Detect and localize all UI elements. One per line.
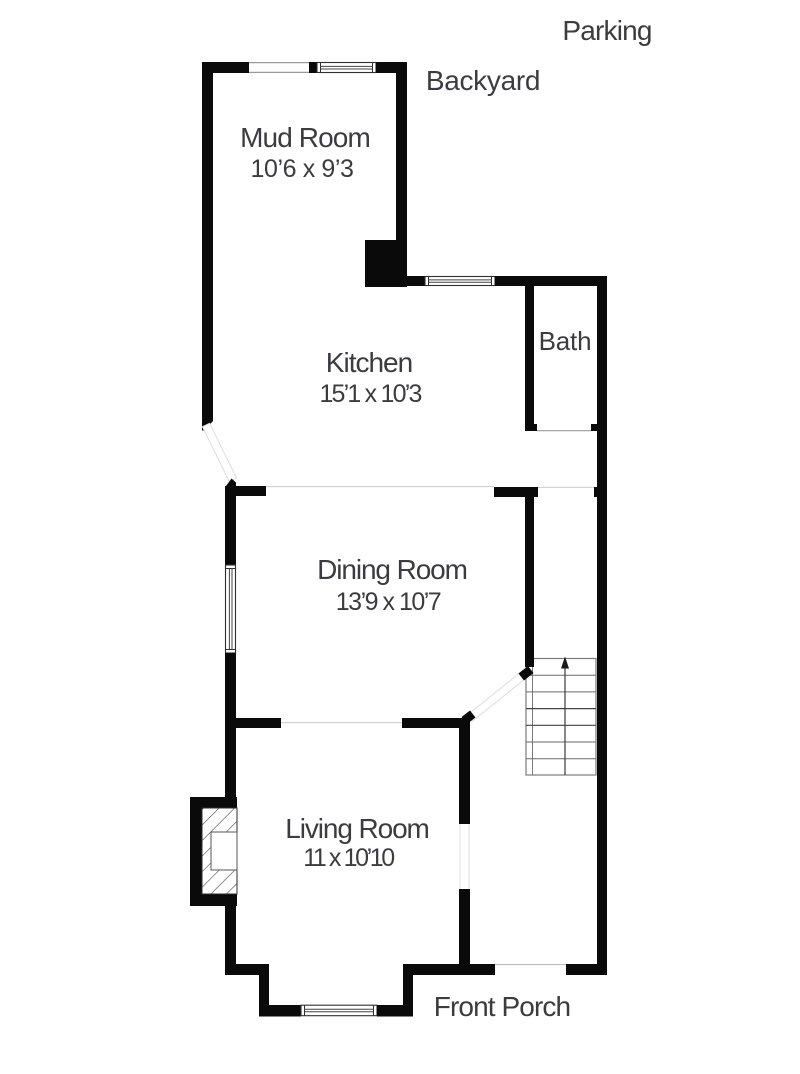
svg-text:Parking: Parking [562, 15, 651, 46]
svg-text:11 x 10’10: 11 x 10’10 [303, 844, 394, 872]
svg-text:10’6 x 9’3: 10’6 x 9’3 [250, 155, 353, 183]
svg-text:13’9 x 10’7: 13’9 x 10’7 [336, 588, 441, 616]
svg-text:Mud Room: Mud Room [240, 122, 370, 153]
svg-text:Dining Room: Dining Room [317, 554, 467, 585]
svg-text:Front Porch: Front Porch [434, 991, 570, 1022]
svg-text:Backyard: Backyard [426, 65, 540, 96]
svg-text:15’1 x 10’3: 15’1 x 10’3 [319, 380, 421, 408]
svg-text:Bath: Bath [539, 326, 592, 356]
svg-text:Living Room: Living Room [285, 813, 429, 844]
svg-text:Kitchen: Kitchen [326, 347, 412, 378]
